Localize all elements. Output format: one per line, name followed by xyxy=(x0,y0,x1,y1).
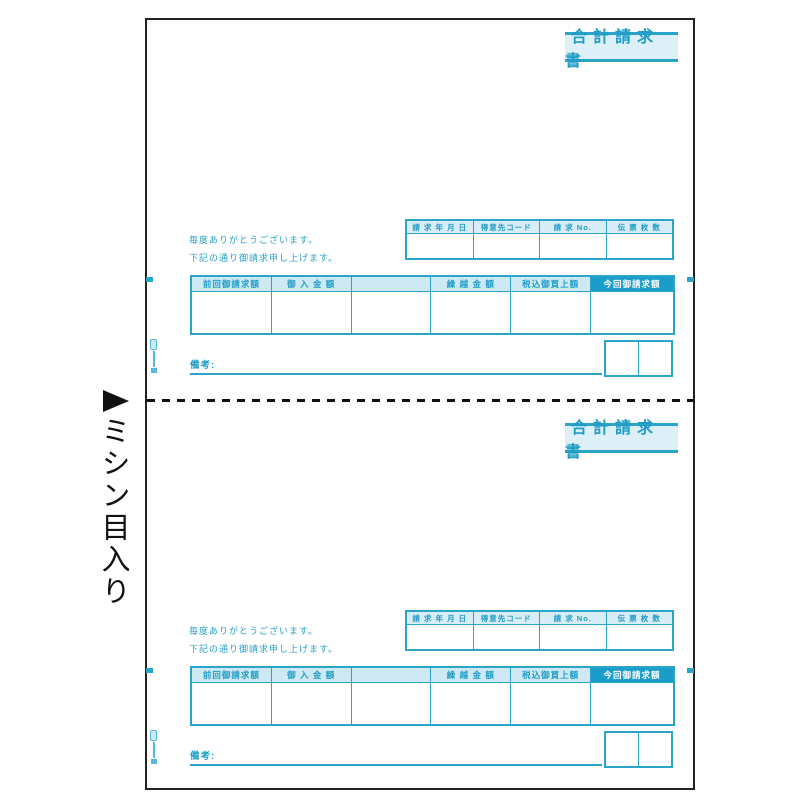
page-title: 合計請求書 xyxy=(565,32,678,62)
info-header-slip-count: 伝 票 枚 数 xyxy=(607,221,673,234)
invoice-form-bottom: 合計請求書 請 求 年 月 日 得意先コード 請 求 No. 伝 票 枚 数 毎… xyxy=(147,411,693,792)
approval-stamp-boxes xyxy=(604,340,673,377)
info-header-date: 請 求 年 月 日 xyxy=(407,221,474,234)
summary-header-payment-amount: 御 入 金 額 xyxy=(272,668,352,683)
left-registration-tick xyxy=(146,277,153,282)
info-value-invoice-no xyxy=(540,625,607,649)
invoice-info-table: 請 求 年 月 日 得意先コード 請 求 No. 伝 票 枚 数 xyxy=(405,610,674,651)
info-value-slip-count xyxy=(607,234,673,258)
summary-header-current-amount: 今回御請求額 xyxy=(591,277,673,292)
summary-value-row xyxy=(192,292,673,333)
remarks-label: 備考: xyxy=(190,748,215,762)
page-title: 合計請求書 xyxy=(565,423,678,453)
info-header-invoice-no: 請 求 No. xyxy=(540,612,607,625)
summary-value-blank xyxy=(352,292,432,333)
stamp-box xyxy=(606,733,639,766)
summary-header-carryover-amount: 繰 越 金 額 xyxy=(431,277,511,292)
summary-header-payment-amount: 御 入 金 額 xyxy=(272,277,352,292)
perforation-label: ミシン目入り xyxy=(96,416,134,626)
summary-header-blank xyxy=(352,668,432,683)
summary-header-current-amount: 今回御請求額 xyxy=(591,668,673,683)
summary-header-taxed-purchase: 税込御買上額 xyxy=(511,277,591,292)
summary-value-row xyxy=(192,683,673,724)
approval-stamp-boxes xyxy=(604,731,673,768)
summary-value-current-amount xyxy=(591,683,673,724)
greeting-line-2: 下記の通り御請求申し上げます。 xyxy=(189,251,338,264)
stamp-box xyxy=(639,733,671,766)
invoice-sheet: 合計請求書 請 求 年 月 日 得意先コード 請 求 No. 伝 票 枚 数 毎… xyxy=(145,18,695,790)
invoice-info-table: 請 求 年 月 日 得意先コード 請 求 No. 伝 票 枚 数 xyxy=(405,219,674,260)
summary-value-payment-amount xyxy=(272,683,352,724)
info-header-customer-code: 得意先コード xyxy=(474,612,541,625)
info-header-customer-code: 得意先コード xyxy=(474,221,541,234)
summary-value-previous-amount xyxy=(192,292,272,333)
info-table-header-row: 請 求 年 月 日 得意先コード 請 求 No. 伝 票 枚 数 xyxy=(407,221,672,234)
greeting-line-1: 毎度ありがとうございます。 xyxy=(189,624,318,637)
invoice-form-top: 合計請求書 請 求 年 月 日 得意先コード 請 求 No. 伝 票 枚 数 毎… xyxy=(147,20,693,401)
info-header-slip-count: 伝 票 枚 数 xyxy=(607,612,673,625)
summary-value-blank xyxy=(352,683,432,724)
summary-header-previous-amount: 前回御請求額 xyxy=(192,668,272,683)
product-image-stage: ミシン目入り 合計請求書 請 求 年 月 日 得意先コード 請 求 No. 伝 … xyxy=(0,0,800,800)
summary-value-payment-amount xyxy=(272,292,352,333)
greeting-line-1: 毎度ありがとうございます。 xyxy=(189,233,318,246)
right-registration-tick xyxy=(687,668,694,673)
summary-value-previous-amount xyxy=(192,683,272,724)
summary-header-blank xyxy=(352,277,432,292)
info-value-slip-count xyxy=(607,625,673,649)
stamp-box xyxy=(606,342,639,375)
edge-product-code-mark xyxy=(149,730,158,768)
summary-header-carryover-amount: 繰 越 金 額 xyxy=(431,668,511,683)
perforation-dashed-line xyxy=(147,399,693,402)
summary-header-previous-amount: 前回御請求額 xyxy=(192,277,272,292)
info-table-value-row xyxy=(407,234,672,258)
billing-summary-table: 前回御請求額 御 入 金 額 繰 越 金 額 税込御買上額 今回御請求額 xyxy=(190,275,675,335)
remarks-underline xyxy=(190,764,602,766)
info-value-customer-code xyxy=(474,234,541,258)
summary-header-taxed-purchase: 税込御買上額 xyxy=(511,668,591,683)
summary-value-taxed-purchase xyxy=(511,683,591,724)
left-registration-tick xyxy=(146,668,153,673)
billing-summary-table: 前回御請求額 御 入 金 額 繰 越 金 額 税込御買上額 今回御請求額 xyxy=(190,666,675,726)
summary-value-carryover-amount xyxy=(431,683,511,724)
info-header-invoice-no: 請 求 No. xyxy=(540,221,607,234)
summary-value-current-amount xyxy=(591,292,673,333)
greeting-line-2: 下記の通り御請求申し上げます。 xyxy=(189,642,338,655)
summary-value-taxed-purchase xyxy=(511,292,591,333)
right-triangle-icon xyxy=(103,390,129,412)
info-value-customer-code xyxy=(474,625,541,649)
remarks-label: 備考: xyxy=(190,357,215,371)
info-value-date xyxy=(407,625,474,649)
summary-value-carryover-amount xyxy=(431,292,511,333)
stamp-box xyxy=(639,342,671,375)
edge-product-code-mark xyxy=(149,339,158,377)
info-header-date: 請 求 年 月 日 xyxy=(407,612,474,625)
right-registration-tick xyxy=(687,277,694,282)
info-value-invoice-no xyxy=(540,234,607,258)
summary-header-row: 前回御請求額 御 入 金 額 繰 越 金 額 税込御買上額 今回御請求額 xyxy=(192,277,673,292)
info-table-value-row xyxy=(407,625,672,649)
remarks-underline xyxy=(190,373,602,375)
info-value-date xyxy=(407,234,474,258)
info-table-header-row: 請 求 年 月 日 得意先コード 請 求 No. 伝 票 枚 数 xyxy=(407,612,672,625)
summary-header-row: 前回御請求額 御 入 金 額 繰 越 金 額 税込御買上額 今回御請求額 xyxy=(192,668,673,683)
